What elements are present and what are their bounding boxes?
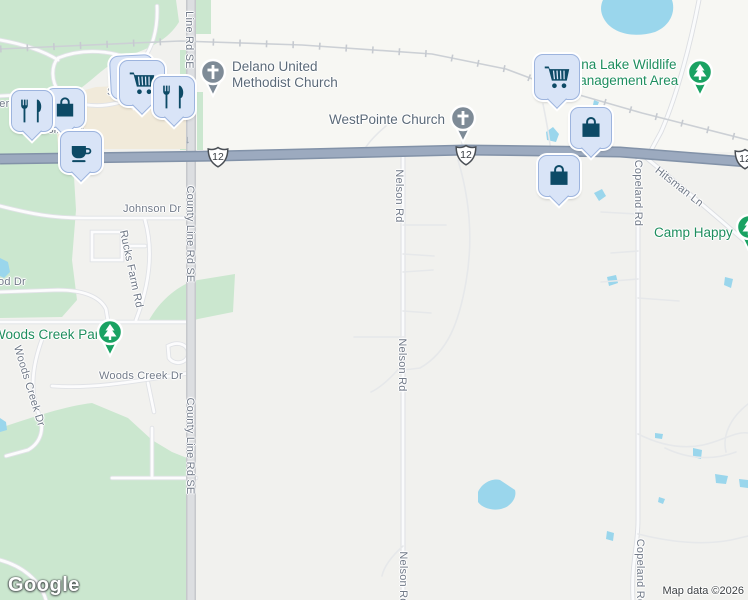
poi-marker-shopping-bag-top-right[interactable] bbox=[570, 107, 612, 149]
google-logo[interactable]: Google bbox=[8, 574, 80, 597]
park-pin-camp-happy[interactable] bbox=[732, 213, 748, 258]
street-label-ter-fragment: ter bbox=[0, 98, 9, 110]
shopping-bag-icon bbox=[53, 96, 77, 120]
coffee-icon bbox=[68, 139, 94, 165]
poi-label-delano-church[interactable]: Delano United Methodist Church bbox=[232, 59, 338, 91]
street-label-nelson-1: Nelson Rd bbox=[393, 169, 405, 222]
shopping-bag-icon bbox=[547, 164, 572, 189]
street-label-nelson-3: Nelson Rd bbox=[397, 551, 409, 600]
map-attribution: Map data ©2026 bbox=[663, 585, 745, 597]
church-icon bbox=[446, 104, 480, 144]
poi-marker-shopping-bag-right[interactable] bbox=[538, 155, 580, 197]
tree-icon bbox=[93, 318, 127, 358]
street-label-county-line-mid: County Line Rd SE bbox=[184, 186, 196, 283]
street-label-woods-creek-dr-h: Woods Creek Dr bbox=[99, 370, 183, 382]
street-label-nelson-2: Nelson Rd bbox=[396, 338, 408, 391]
church-pin-westpointe[interactable] bbox=[446, 104, 480, 149]
route-shield-us12-left: 12 bbox=[205, 145, 231, 171]
tree-icon bbox=[683, 58, 717, 98]
street-label-county-line-top: Line Rd SE bbox=[183, 11, 195, 69]
street-label-johnson: Johnson Dr bbox=[123, 203, 181, 215]
poi-marker-coffee[interactable] bbox=[60, 131, 102, 173]
poi-marker-shopping-cart-right[interactable] bbox=[534, 54, 580, 100]
shopping-bag-icon bbox=[579, 116, 604, 141]
shopping-cart-icon bbox=[128, 69, 156, 97]
one-way-arrow-icon: ↓ bbox=[185, 134, 191, 146]
street-label-county-line-bottom: County Line Rd SE bbox=[184, 398, 196, 495]
park-pin-woods-creek[interactable] bbox=[93, 318, 127, 363]
park-pin-china-lake[interactable] bbox=[683, 58, 717, 103]
street-label-copeland-1: Copeland Rd bbox=[632, 160, 644, 226]
poi-label-woods-creek-park[interactable]: Woods Creek Park bbox=[0, 327, 106, 343]
map-canvas[interactable]: Line Rd SE County Line Rd SE County Line… bbox=[0, 0, 748, 600]
poi-marker-restaurant-top[interactable] bbox=[153, 76, 195, 118]
church-pin-delano[interactable] bbox=[196, 58, 230, 103]
poi-label-westpointe-church[interactable]: WestPointe Church bbox=[329, 112, 445, 128]
restaurant-icon bbox=[19, 98, 45, 124]
poi-label-camp-happy[interactable]: Camp Happy bbox=[654, 225, 733, 241]
street-label-copeland-2: Copeland Rd bbox=[634, 539, 646, 600]
street-label-od-dr: od Dr bbox=[0, 276, 26, 288]
church-icon bbox=[196, 58, 230, 98]
poi-marker-restaurant-left[interactable] bbox=[11, 90, 53, 132]
restaurant-icon bbox=[161, 84, 187, 110]
tree-icon bbox=[732, 213, 748, 253]
shopping-cart-icon bbox=[543, 63, 571, 91]
route-shield-us12-right: 12 bbox=[732, 147, 748, 173]
